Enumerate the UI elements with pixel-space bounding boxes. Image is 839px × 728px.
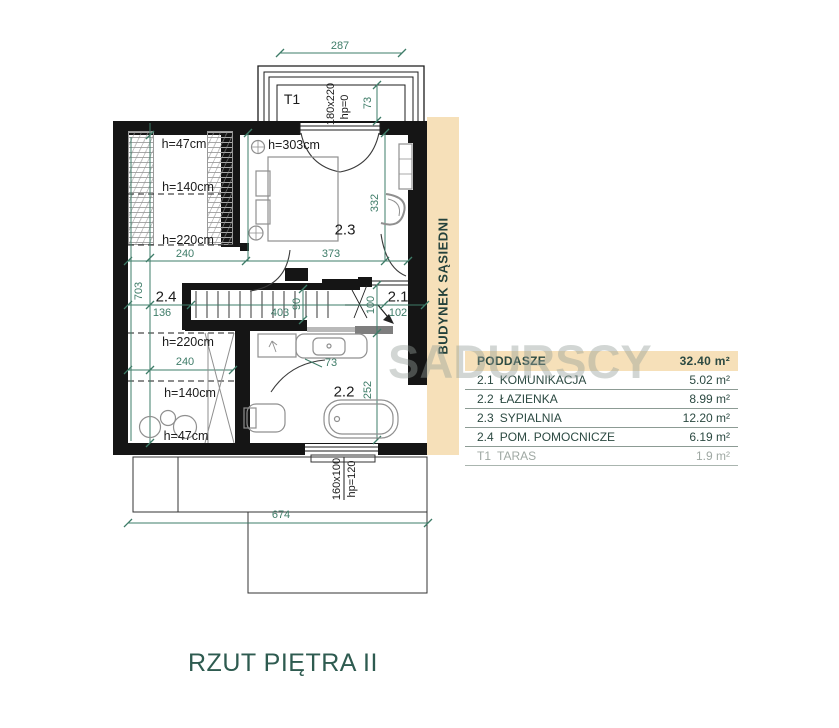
legend-row-area: 6.19 m²: [689, 430, 730, 444]
page-title: RZUT PIĘTRA II: [188, 649, 378, 678]
terrace-window-size: 180x220: [325, 83, 337, 125]
dim-703: 703: [133, 282, 145, 300]
height-label-220-bottom: h=220cm: [162, 335, 214, 349]
legend-row-area: 5.02 m²: [689, 373, 730, 387]
legend-row-name: TARAS: [497, 449, 536, 463]
dim-240-bottom: 240: [176, 356, 194, 368]
room-label-22: 2.2: [334, 384, 355, 401]
height-label-140-top: h=140cm: [162, 180, 214, 194]
legend-row-area: 8.99 m²: [689, 392, 730, 406]
room-label-21: 2.1: [388, 289, 409, 306]
height-label-140-bottom: h=140cm: [164, 386, 216, 400]
legend-row-id: 2.2: [477, 392, 494, 406]
dim-252: 252: [362, 381, 374, 399]
dim-373: 373: [322, 248, 340, 260]
height-label-47-bottom: h=47cm: [164, 429, 209, 443]
sliding-door-leaf: [355, 326, 393, 334]
french-door-right-arc: [340, 133, 379, 172]
bath-window-size: 160x100: [331, 458, 343, 500]
dim-674: 674: [272, 509, 290, 521]
lower-floor-outline: [133, 455, 427, 593]
shelves: [399, 144, 412, 189]
room-label-23: 2.3: [335, 222, 356, 239]
legend-row-area: 1.9 m²: [696, 449, 730, 463]
legend-row-id: 2.3: [477, 411, 494, 425]
bath-cabinet: [258, 334, 296, 357]
height-label-303: h=303cm: [268, 138, 320, 152]
legend-row: 2.2ŁAZIENKA 8.99 m²: [465, 390, 738, 409]
legend-row: 2.4POM. POMOCNICZE 6.19 m²: [465, 428, 738, 447]
dim-136: 136: [153, 307, 171, 319]
terrace-window-sill: hp=0: [339, 95, 351, 120]
legend-row-name: SYPIALNIA: [500, 411, 562, 425]
dim-terrace-depth: 73: [362, 97, 374, 109]
terrace-label: T1: [284, 91, 300, 107]
bed: [268, 157, 338, 241]
legend-row-area: 12.20 m²: [683, 411, 730, 425]
legend-row-name: POM. POMOCNICZE: [500, 430, 615, 444]
dim-403: 403: [271, 307, 289, 319]
dim-90: 90: [291, 298, 303, 310]
dim-100: 100: [365, 296, 377, 314]
legend-row: 2.3SYPIALNIA 12.20 m²: [465, 409, 738, 428]
dim-terrace-width: 287: [331, 40, 349, 52]
pouf-2: [161, 411, 176, 426]
watermark: SADURSCY: [388, 334, 652, 389]
room-label-24: 2.4: [156, 289, 177, 306]
dim-240-top: 240: [176, 248, 194, 260]
bath-window-sill: hp=120: [346, 460, 358, 497]
legend-row-name: ŁAZIENKA: [500, 392, 558, 406]
ceiling-height-dashes: [128, 194, 244, 381]
floor-plan-canvas: BUDYNEK SĄSIEDNI: [0, 0, 839, 728]
dim-73-bath: 73: [325, 357, 337, 369]
legend-header-area: 32.40 m²: [680, 354, 730, 368]
bedroom-left-door-arc: [250, 250, 290, 291]
dim-332: 332: [369, 194, 381, 212]
legend-row-id: T1: [477, 449, 491, 463]
legend-row-id: 2.4: [477, 430, 494, 444]
dim-102: 102: [389, 307, 407, 319]
height-label-220-top: h=220cm: [162, 233, 214, 247]
height-label-47-top: h=47cm: [162, 137, 207, 151]
legend-row-taras: T1TARAS 1.9 m²: [465, 447, 738, 466]
